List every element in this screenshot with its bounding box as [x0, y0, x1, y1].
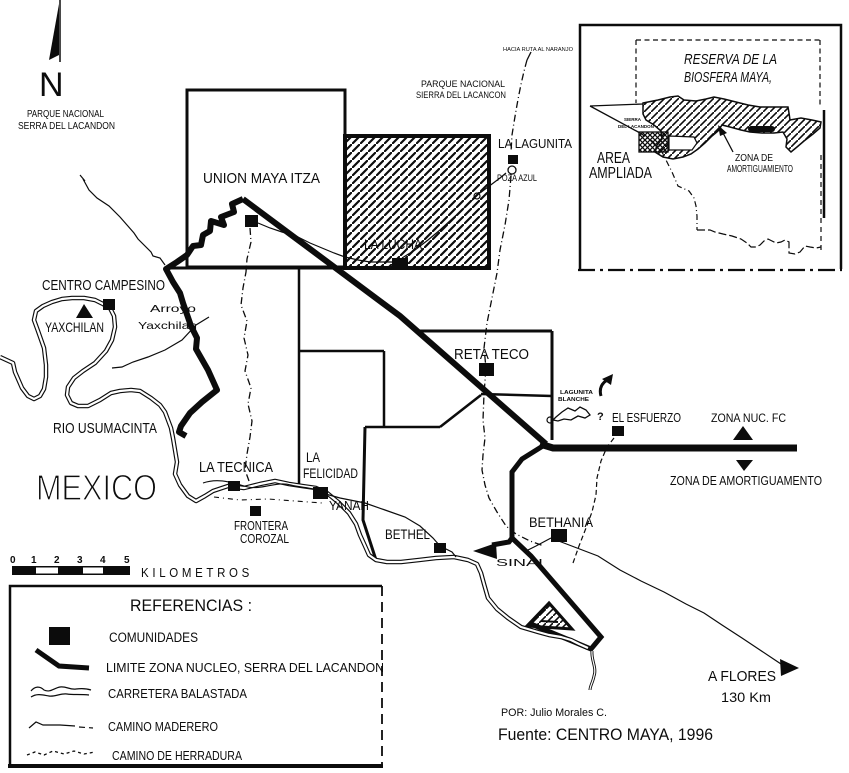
svg-text:DEL LACANDON: DEL LACANDON	[618, 124, 654, 129]
svg-text:POZA AZUL: POZA AZUL	[497, 173, 537, 183]
svg-text:BETHANIA: BETHANIA	[529, 515, 593, 530]
svg-text:?: ?	[597, 411, 604, 423]
svg-text:ZONA DE AMORTIGUAMENTO: ZONA DE AMORTIGUAMENTO	[670, 474, 822, 488]
svg-text:N: N	[39, 66, 64, 104]
svg-text:YAXCHILAN: YAXCHILAN	[45, 319, 104, 335]
svg-text:SIERRA: SIERRA	[624, 117, 642, 122]
svg-text:5: 5	[124, 555, 130, 566]
svg-text:RIO USUMACINTA: RIO USUMACINTA	[53, 421, 157, 437]
svg-text:BLANCHE: BLANCHE	[558, 397, 589, 403]
svg-text:SERRA DEL LACANDON: SERRA DEL LACANDON	[18, 121, 115, 132]
svg-text:ZONA NUC. FC: ZONA NUC. FC	[711, 411, 786, 425]
svg-text:BIOSFERA MAYA,: BIOSFERA MAYA,	[684, 69, 772, 86]
svg-text:Yaxchilan: Yaxchilan	[138, 320, 197, 332]
svg-text:YANAH: YANAH	[329, 498, 369, 513]
svg-text:LAGUNITA: LAGUNITA	[560, 390, 593, 396]
svg-text:CAMINO DE HERRADURA: CAMINO DE HERRADURA	[112, 748, 242, 763]
svg-text:CENTRO CAMPESINO: CENTRO CAMPESINO	[42, 277, 165, 294]
svg-text:MEXICO: MEXICO	[36, 467, 157, 508]
svg-text:EL ESFUERZO: EL ESFUERZO	[612, 410, 681, 425]
svg-text:4: 4	[100, 555, 106, 566]
svg-text:PARQUE NACIONAL: PARQUE NACIONAL	[27, 109, 104, 120]
svg-text:COMUNIDADES: COMUNIDADES	[109, 630, 198, 645]
svg-text:PARQUE NACIONAL: PARQUE NACIONAL	[421, 79, 505, 90]
svg-text:SIERRA DEL LACANCON: SIERRA DEL LACANCON	[416, 90, 506, 101]
svg-text:Fuente: CENTRO MAYA, 1996: Fuente: CENTRO MAYA, 1996	[498, 725, 713, 744]
svg-text:CARRETERA BALASTADA: CARRETERA BALASTADA	[108, 686, 247, 701]
svg-text:3: 3	[77, 555, 83, 566]
svg-text:UNION MAYA ITZA: UNION MAYA ITZA	[203, 170, 320, 187]
svg-text:COROZAL: COROZAL	[240, 531, 289, 546]
svg-text:130 Km: 130 Km	[721, 690, 771, 705]
svg-text:RESERVA DE LA: RESERVA DE LA	[684, 51, 777, 68]
svg-text:1: 1	[31, 555, 37, 566]
svg-text:LA LAGUNITA: LA LAGUNITA	[498, 136, 572, 151]
svg-text:KILOMETROS: KILOMETROS	[141, 566, 253, 580]
svg-text:LIMITE ZONA NUCLEO, SERRA DEL: LIMITE ZONA NUCLEO, SERRA DEL LACANDON	[106, 661, 384, 675]
svg-text:LA TECNICA: LA TECNICA	[199, 459, 273, 476]
svg-text:A FLORES: A FLORES	[708, 668, 776, 685]
svg-text:RETA TECO: RETA TECO	[454, 346, 529, 363]
svg-text:0: 0	[10, 555, 16, 566]
svg-text:2: 2	[54, 555, 60, 566]
svg-text:AMORTIGUAMIENTO: AMORTIGUAMIENTO	[727, 163, 793, 175]
svg-text:REFERENCIAS :: REFERENCIAS :	[130, 596, 252, 615]
svg-text:POR: Julio Morales C.: POR: Julio Morales C.	[501, 707, 607, 719]
svg-text:CAMINO MADERERO: CAMINO MADERERO	[108, 719, 218, 734]
svg-text:LA LUCHA: LA LUCHA	[364, 237, 422, 252]
svg-text:SINAI: SINAI	[496, 557, 543, 569]
svg-text:AMPLIADA: AMPLIADA	[589, 165, 652, 182]
svg-text:FELICIDAD: FELICIDAD	[303, 466, 358, 481]
svg-text:Arroyo: Arroyo	[150, 303, 196, 315]
svg-text:HACIA RUTA AL NARANJO: HACIA RUTA AL NARANJO	[503, 47, 574, 53]
svg-text:LA: LA	[306, 450, 320, 465]
